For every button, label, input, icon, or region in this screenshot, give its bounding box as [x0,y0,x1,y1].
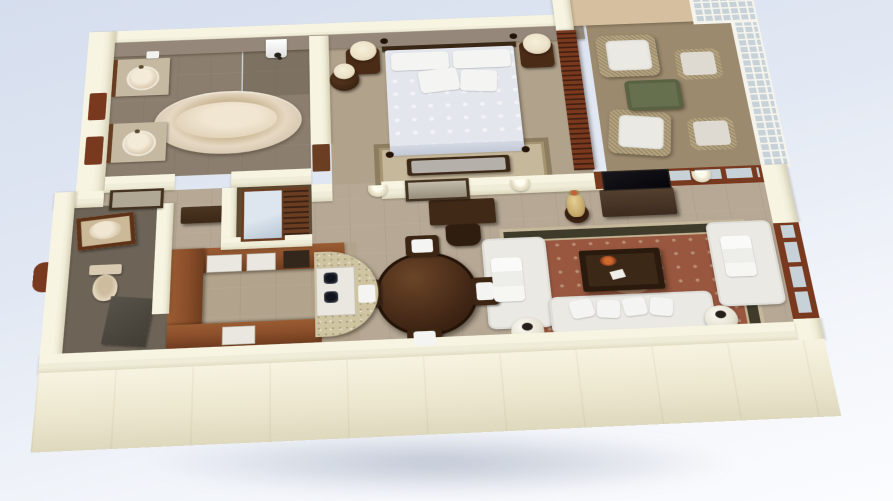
bed-pillow-2 [452,49,511,69]
dining-chair-south-cushion [413,331,436,346]
closet-mirror [241,188,285,242]
writing-desk [428,198,496,226]
powder-slate-mat [101,296,155,346]
wall-bath-bedroom [309,35,331,144]
sofa-front-pillow-3 [621,296,649,317]
cooktop-burner-2 [324,291,338,303]
door-left-1 [88,93,107,121]
tv-console [599,187,678,217]
lattice-window-back [685,0,758,24]
sofa-front-pillow-4 [649,297,673,317]
kitchen-appliance-washer [246,253,275,272]
dining-chair-west-cushion [358,284,376,302]
dining-chair-east-cushion [476,282,495,300]
framed-art-hall [405,178,470,202]
sofa-left-pillows [490,257,525,302]
door-left-2 [84,136,104,165]
wall-right-front-corner [793,318,824,341]
wall-bedroom-front-stub [311,184,332,202]
wicker-ottoman-2-top [692,120,731,146]
desk-chair [445,223,482,246]
sofa-front-pillow-2 [597,299,621,318]
kitchen-appliance-oven [222,325,256,345]
wicker-armchair-2-cushion [618,115,664,150]
tv-screen [601,169,672,191]
framed-art-entry [109,188,164,210]
dining-chair-north-cushion [411,239,433,253]
closet-louver-shelves [283,187,309,235]
kitchen-appliance-dishwasher [206,254,242,273]
wall-bathroom-front-right [231,168,311,187]
kitchen-shelf-dark [283,250,309,268]
wicker-armchair-1-cushion [605,39,653,71]
door-bathroom [312,144,330,172]
cooktop-burner-1 [324,272,338,284]
apartment-plan [31,4,851,451]
floor-plan-render [0,0,893,501]
green-bench [624,79,684,111]
bed-pillow-3 [417,67,461,94]
wicker-ottoman-1-top [680,51,718,75]
bed-pillow-4 [460,69,497,91]
washcloth [146,51,159,59]
